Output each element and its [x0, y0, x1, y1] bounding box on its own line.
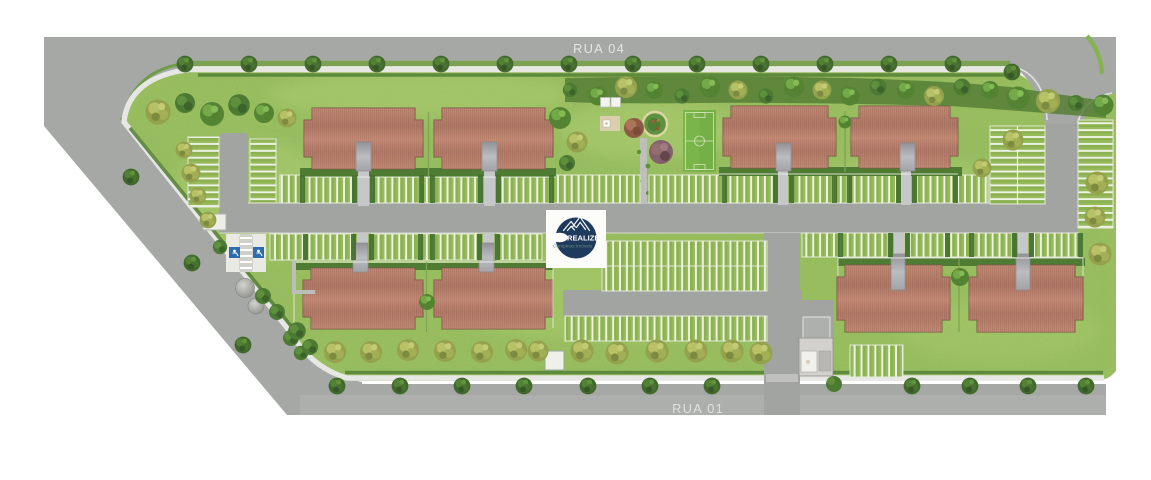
svg-text:RUA 04: RUA 04 [573, 41, 625, 56]
svg-text:Campinas Imóveis: Campinas Imóveis [553, 244, 593, 250]
svg-text:REALIZE: REALIZE [567, 234, 600, 243]
svg-text:RUA 01: RUA 01 [672, 401, 724, 416]
